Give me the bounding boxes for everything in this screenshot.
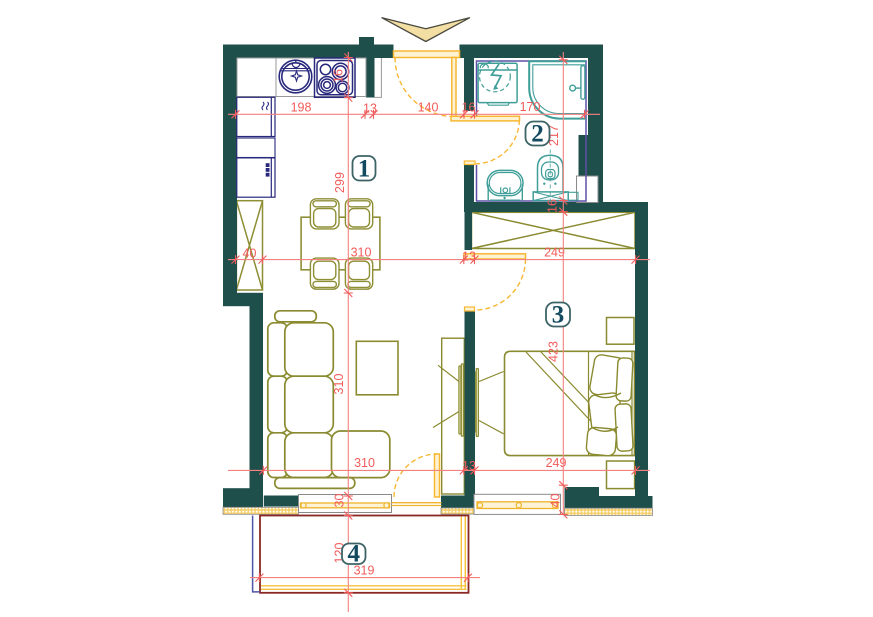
svg-text:2: 2 — [531, 121, 544, 148]
svg-text:310: 310 — [351, 246, 372, 260]
svg-text:249: 249 — [544, 246, 565, 260]
svg-text:16: 16 — [332, 69, 346, 83]
svg-text:170: 170 — [520, 100, 541, 114]
svg-text:3: 3 — [552, 302, 565, 329]
svg-text:310: 310 — [354, 456, 375, 470]
svg-text:13: 13 — [462, 250, 476, 264]
svg-text:30: 30 — [333, 494, 347, 508]
svg-text:13: 13 — [363, 102, 377, 116]
svg-text:16: 16 — [462, 101, 476, 115]
svg-text:16: 16 — [546, 199, 560, 213]
svg-text:4: 4 — [347, 541, 360, 568]
svg-text:310: 310 — [332, 374, 346, 395]
svg-text:40: 40 — [243, 247, 257, 261]
svg-text:13: 13 — [462, 459, 476, 473]
svg-text:198: 198 — [291, 101, 312, 115]
svg-text:299: 299 — [333, 172, 347, 193]
svg-text:140: 140 — [418, 101, 439, 115]
svg-text:1: 1 — [358, 156, 371, 183]
svg-text:423: 423 — [547, 341, 561, 362]
svg-text:40: 40 — [549, 494, 563, 508]
